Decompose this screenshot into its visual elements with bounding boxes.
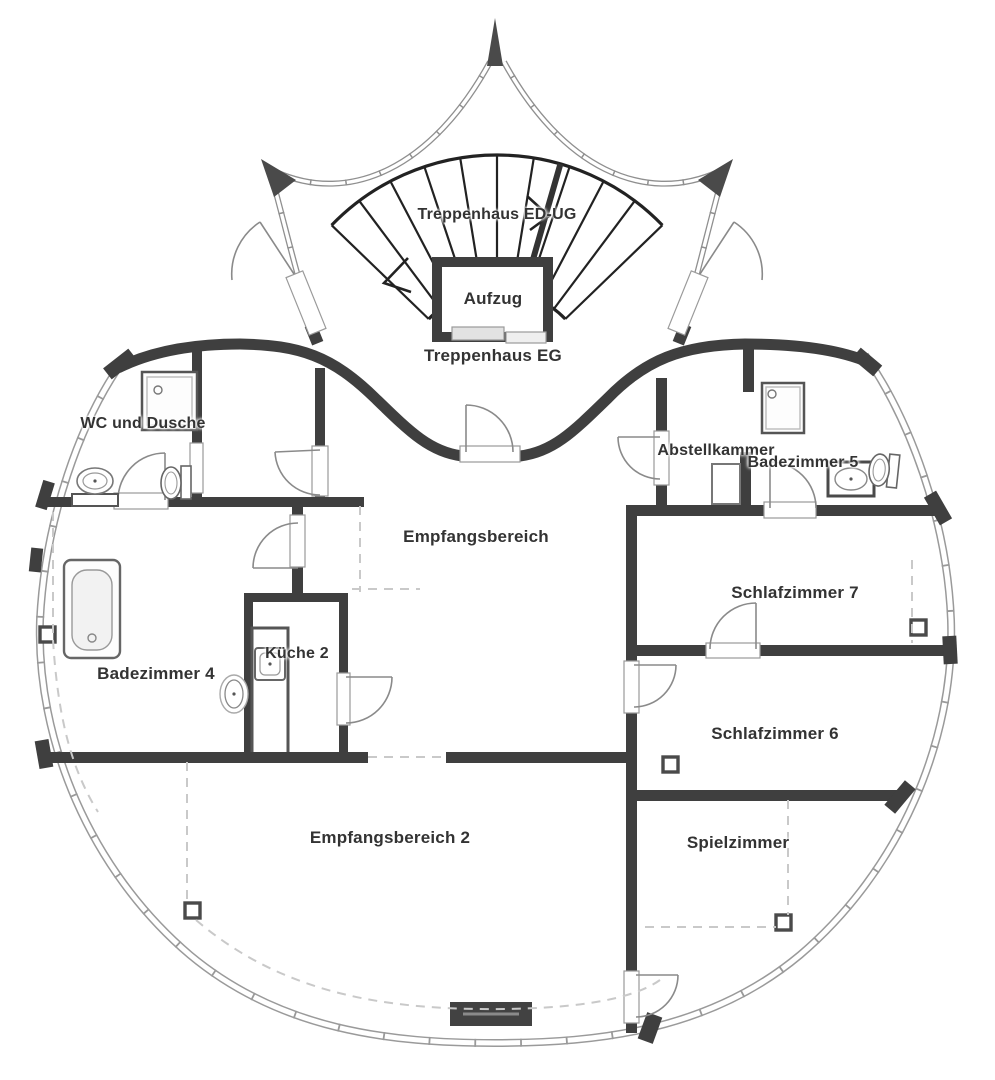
- label-empfangsbereich: Empfangsbereich: [403, 527, 549, 547]
- label-badezimmer-5: Badezimmer 5: [748, 454, 859, 472]
- toilet: [220, 675, 248, 713]
- label-treppenhaus-eg: Treppenhaus EG: [424, 346, 562, 366]
- elevator-door: [506, 332, 546, 343]
- canopy-spike-right: [698, 159, 733, 197]
- toilet: [161, 466, 191, 499]
- canopy-spike-left: [261, 159, 296, 197]
- label-wc-und-dusche: WC und Dusche: [80, 415, 205, 433]
- label-badezimmer-4: Badezimmer 4: [97, 664, 215, 684]
- elevator-door: [452, 327, 504, 340]
- label-kueche-2: Küche 2: [265, 645, 329, 663]
- label-spielzimmer: Spielzimmer: [687, 833, 789, 853]
- entrance-spire: [487, 18, 503, 66]
- label-schlafzimmer-6: Schlafzimmer 6: [711, 724, 839, 744]
- fireplace: [450, 1002, 532, 1026]
- label-schlafzimmer-7: Schlafzimmer 7: [731, 583, 859, 603]
- floor-plan-canvas: Treppenhaus ED-UG Aufzug Treppenhaus EG …: [0, 0, 995, 1080]
- shower: [762, 383, 804, 433]
- bathtub: [64, 560, 120, 658]
- storage-cabinet: [712, 464, 740, 504]
- label-empfangsbereich-2: Empfangsbereich 2: [310, 828, 470, 848]
- label-treppenhaus-ed-ug: Treppenhaus ED-UG: [418, 206, 577, 224]
- toilet: [868, 452, 900, 488]
- label-aufzug: Aufzug: [464, 289, 523, 309]
- wash-basin: [72, 468, 118, 506]
